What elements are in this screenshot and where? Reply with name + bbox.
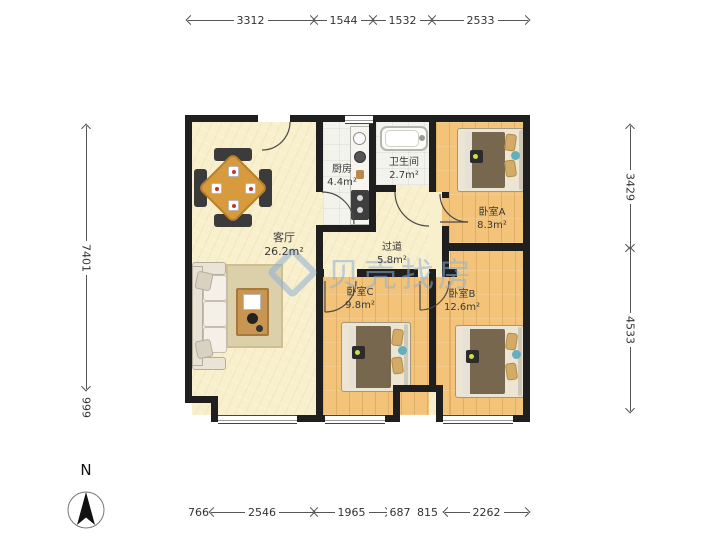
plate bbox=[211, 183, 222, 194]
dimension-top-2: 1544 bbox=[314, 13, 373, 27]
compass-circle bbox=[68, 492, 104, 528]
room-label-bedroom-a: 卧室A 8.3m² bbox=[477, 206, 507, 232]
room-area: 2.7m² bbox=[389, 169, 419, 182]
room-area: 12.6m² bbox=[444, 301, 480, 314]
room-area: 8.3m² bbox=[477, 219, 507, 232]
dimension-top-4: 2533 bbox=[432, 13, 529, 27]
room-name: 客厅 bbox=[264, 231, 304, 245]
wall bbox=[185, 115, 192, 403]
room-area: 4.4m² bbox=[327, 176, 357, 189]
tea-tray bbox=[243, 294, 261, 310]
bed-a-tray bbox=[470, 150, 483, 163]
wall bbox=[316, 122, 323, 192]
room-label-hallway: 过道 5.8m² bbox=[377, 241, 407, 267]
plate bbox=[245, 183, 256, 194]
room-area: 26.2m² bbox=[264, 245, 304, 259]
dimension-bottom-1: 766 bbox=[187, 505, 210, 519]
plate bbox=[228, 166, 239, 177]
wall bbox=[373, 115, 530, 122]
dimension-left-1: 7401 bbox=[79, 125, 93, 390]
wall bbox=[290, 115, 345, 122]
kettle bbox=[247, 313, 258, 324]
dimension-top-3: 1532 bbox=[373, 13, 432, 27]
wall bbox=[523, 115, 530, 422]
bed-b-headboard bbox=[518, 327, 522, 396]
room-area: 5.8m² bbox=[377, 254, 407, 267]
dimension-top-1: 3312 bbox=[187, 13, 314, 27]
bed-c-headboard bbox=[404, 324, 408, 390]
sofa-pillow bbox=[194, 339, 213, 360]
window-kitchen bbox=[345, 115, 373, 124]
bathtub-inner bbox=[385, 130, 419, 147]
cup bbox=[256, 325, 263, 332]
room-name: 卧室B bbox=[444, 288, 480, 301]
faucet bbox=[356, 170, 364, 179]
sofa-cushion bbox=[203, 301, 227, 327]
north-label: N bbox=[78, 461, 94, 479]
bed-b-tray bbox=[466, 350, 479, 363]
burner bbox=[357, 195, 363, 201]
floor-plan-canvas: 贝壳找房 客厅 26.2m² 厨房 4.4m² 卫生间 2.7m² 卧室A 8.… bbox=[0, 0, 720, 540]
room-area: 9.8m² bbox=[345, 299, 375, 312]
bed-c-tray bbox=[352, 346, 365, 359]
window-bedroom-b bbox=[443, 415, 513, 424]
room-name: 卧室C bbox=[345, 286, 375, 299]
room-name: 卫生间 bbox=[389, 156, 419, 169]
bed-b-pillow bbox=[505, 362, 518, 380]
room-label-kitchen: 厨房 4.4m² bbox=[327, 163, 357, 189]
room-name: 卧室A bbox=[477, 206, 507, 219]
room-name: 过道 bbox=[377, 241, 407, 254]
wall bbox=[429, 115, 436, 192]
bed-a-pillow bbox=[504, 133, 517, 151]
wall bbox=[316, 225, 376, 232]
bed-c-cushion bbox=[398, 346, 407, 355]
dimension-bottom-3: 1965 bbox=[314, 505, 389, 519]
bed-c-pillow bbox=[391, 328, 404, 346]
room-label-living: 客厅 26.2m² bbox=[264, 231, 304, 259]
window-living bbox=[218, 415, 297, 424]
kitchen-clock bbox=[353, 132, 366, 145]
bed-a-cushion bbox=[511, 151, 520, 160]
dimension-bottom-5: 815 bbox=[411, 505, 444, 519]
room-label-bedroom-c: 卧室C 9.8m² bbox=[345, 286, 375, 312]
dimension-bottom-2: 2546 bbox=[210, 505, 314, 519]
dimension-right-1: 3429 bbox=[623, 125, 637, 248]
burner bbox=[357, 207, 363, 213]
window-bedroom-c bbox=[325, 415, 385, 424]
compass-needle-icon bbox=[77, 492, 95, 525]
sink bbox=[354, 151, 366, 163]
wall bbox=[436, 385, 443, 422]
bed-b-pillow bbox=[505, 332, 518, 350]
dimension-bottom-4: 687 bbox=[389, 505, 411, 519]
room-name: 厨房 bbox=[327, 163, 357, 176]
wall bbox=[442, 192, 449, 198]
bed-b-cushion bbox=[512, 350, 521, 359]
bed-c-pillow bbox=[391, 356, 404, 374]
room-label-bedroom-b: 卧室B 12.6m² bbox=[444, 288, 480, 314]
wall bbox=[376, 185, 396, 192]
dimension-bottom-6: 2262 bbox=[444, 505, 529, 519]
dimension-right-2: 4533 bbox=[623, 248, 637, 412]
compass bbox=[66, 488, 106, 532]
room-label-bathroom: 卫生间 2.7m² bbox=[389, 156, 419, 182]
bed-a-pillow bbox=[504, 159, 517, 177]
wall bbox=[211, 396, 218, 422]
wall bbox=[369, 115, 376, 232]
dimension-left-2: 999 bbox=[79, 390, 93, 425]
plate bbox=[228, 200, 239, 211]
wall bbox=[185, 115, 258, 122]
bathtub-faucet bbox=[419, 135, 425, 141]
